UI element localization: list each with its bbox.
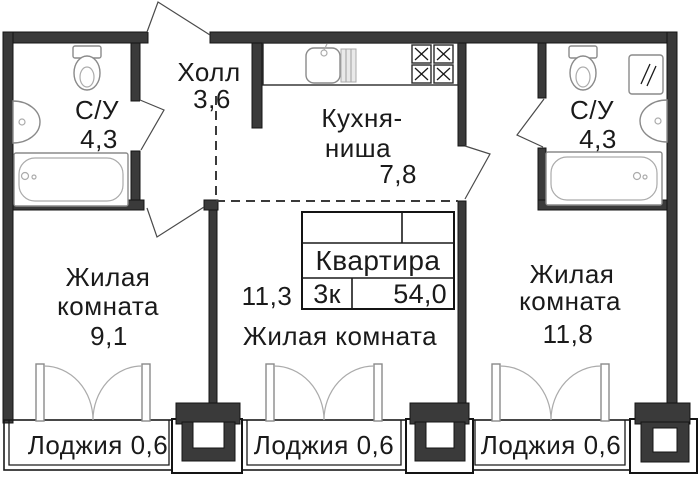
bath-left-east-wall-upper (131, 43, 140, 101)
bath-right-west-wall-upper (538, 43, 546, 98)
door-arc (500, 366, 551, 420)
door-leaf (142, 364, 150, 421)
french-door-right (492, 364, 609, 421)
kitchen-label-line1: Кухня- (321, 103, 402, 133)
bath-left-area: 4,3 (80, 124, 118, 154)
pillar-right-cap (635, 403, 690, 424)
kitchen-area: 7,8 (379, 159, 417, 189)
door-leaf (36, 364, 44, 421)
room-left-label-line1: Жилая (66, 262, 151, 292)
french-door-left (36, 364, 150, 421)
water-heater-icon (629, 55, 663, 94)
loggia-mid-label: Лоджия 0,6 (254, 430, 394, 460)
pillar-left-notch (193, 422, 224, 448)
floor-plan: Квартира 3к 54,0 С/У 4,3 Холл 3,6 Кухня-… (0, 0, 700, 478)
door-arc (274, 366, 324, 420)
dishwasher-icon (341, 49, 356, 82)
bath-right-door-swing (517, 99, 544, 147)
entrance-door-swing (147, 2, 210, 35)
loggia-right-label: Лоджия 0,6 (481, 430, 621, 460)
pillar-right (630, 403, 697, 473)
room-right-label-line2: комната (519, 286, 621, 316)
bath-left-door-swing (140, 100, 164, 150)
bath-right-label: С/У (570, 95, 614, 125)
room-right-area: 11,8 (543, 319, 594, 349)
sink-icon (13, 101, 40, 143)
pillar-mid-cap (410, 403, 469, 424)
door-leaf (374, 364, 382, 421)
french-doors (36, 364, 609, 421)
door-leaf (492, 364, 500, 421)
kitchen-fixtures (263, 43, 458, 85)
room-right-label-line1: Жилая (530, 259, 615, 289)
room-mid-area: 11,3 (242, 281, 293, 311)
right-outer-wall (667, 32, 677, 413)
pillar-left-cap (176, 403, 240, 424)
door-arc (324, 366, 374, 420)
room-left-door-swing (147, 207, 204, 237)
sink-icon (640, 100, 667, 142)
top-wall-right (210, 32, 677, 43)
floor-plan-drawing: Квартира 3к 54,0 С/У 4,3 Холл 3,6 Кухня-… (0, 0, 700, 478)
door-leaf (601, 364, 609, 421)
room-mid-label: Жилая комната (243, 321, 437, 351)
apartment-rooms-code: 3к (313, 279, 340, 309)
left-outer-wall (3, 32, 13, 423)
room-left-label-line2: комната (57, 291, 159, 321)
hall-east-wall (252, 43, 262, 128)
hall-label: Холл (177, 57, 240, 87)
room-left-door-corner (204, 200, 218, 210)
toilet-bowl-icon (570, 56, 596, 90)
partition-mid-right (458, 201, 466, 408)
title-block: Квартира 3к 54,0 (302, 212, 454, 309)
bath-left-label: С/У (75, 95, 119, 125)
door-arc (93, 366, 142, 420)
pillar-left (172, 403, 242, 473)
vestibule-door-swing (465, 146, 490, 199)
kitchen-sink-icon (306, 48, 340, 83)
apartment-title: Квартира (315, 245, 440, 276)
top-wall-left (3, 32, 148, 43)
hall-area: 3,6 (193, 84, 231, 114)
door-leaf (266, 364, 274, 421)
door-arc (44, 366, 93, 420)
apartment-total-area: 54,0 (393, 279, 447, 309)
pillar-mid (406, 403, 473, 473)
bath-right-area: 4,3 (579, 124, 617, 154)
pillar-right-notch (653, 428, 677, 452)
toilet-bowl-icon (74, 56, 100, 90)
pillar-mid-notch (426, 422, 454, 448)
kitchen-east-wall (458, 43, 466, 146)
room-left-area: 9,1 (90, 321, 128, 351)
door-arc (551, 366, 601, 420)
french-door-mid (266, 364, 382, 421)
bathtub-icon (14, 153, 128, 206)
partition-left-mid (209, 210, 217, 408)
loggia-left-label: Лоджия 0,6 (28, 430, 168, 460)
